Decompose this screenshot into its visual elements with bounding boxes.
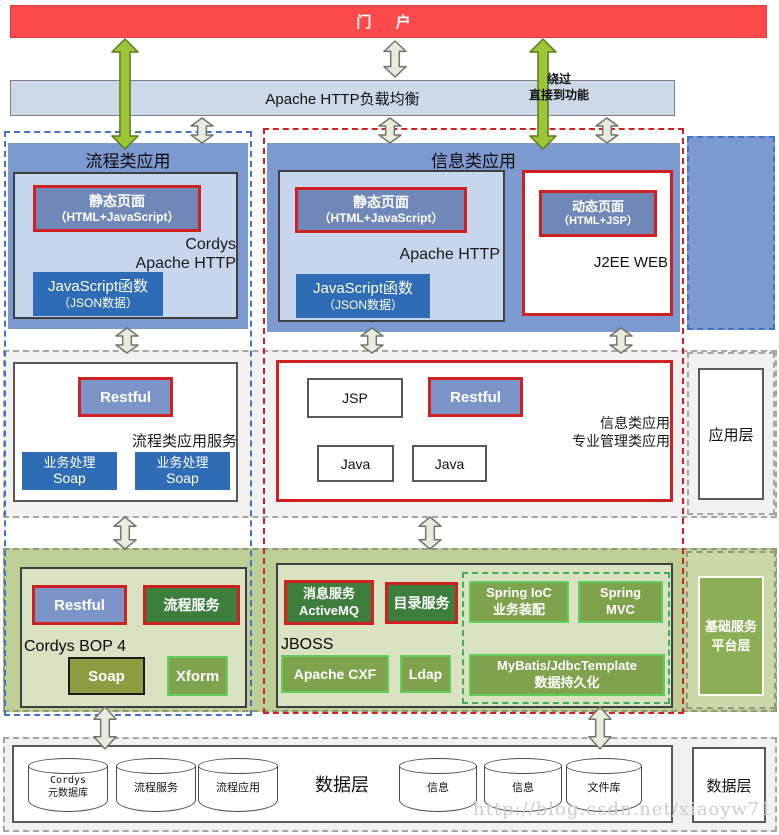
double-arrow [588, 706, 612, 750]
data-layer-inline-label: 数据层 [296, 771, 388, 797]
architecture-diagram: 门 户 Apache HTTP负载均衡 流程类应用 静态页面 （HTML+Jav… [0, 0, 779, 835]
double-arrow [383, 40, 407, 78]
database-cylinder: 流程应用 [198, 758, 278, 812]
watermark-text: http://blog.csdn.net/xiaoyw71 [473, 799, 773, 820]
double-arrow [115, 327, 139, 354]
process-column-frame [4, 131, 252, 716]
double-arrow [113, 516, 137, 550]
load-balancer-label: Apache HTTP负载均衡 [265, 88, 419, 109]
double-arrow [190, 117, 214, 144]
double-arrow [609, 327, 633, 354]
double-arrow [595, 117, 619, 144]
double-arrow [418, 516, 442, 550]
bypass-note: 绕过 直接到功能 [500, 71, 618, 103]
presentation-label-container [687, 136, 775, 330]
double-arrow [93, 706, 117, 750]
double-arrow [360, 327, 384, 354]
portal-label: 门 户 [356, 11, 420, 32]
bypass-arrow [111, 38, 139, 150]
database-cylinder: 流程服务 [116, 758, 196, 812]
double-arrow [378, 117, 402, 144]
portal-bar: 门 户 [10, 5, 767, 38]
platform-layer-label: 基础服务 平台层 [698, 576, 764, 696]
application-layer-label: 应用层 [698, 368, 764, 500]
info-column-frame [263, 128, 684, 714]
database-cylinder: Cordys 元数据库 [28, 758, 108, 812]
database-cylinder: 信息 [399, 758, 477, 812]
